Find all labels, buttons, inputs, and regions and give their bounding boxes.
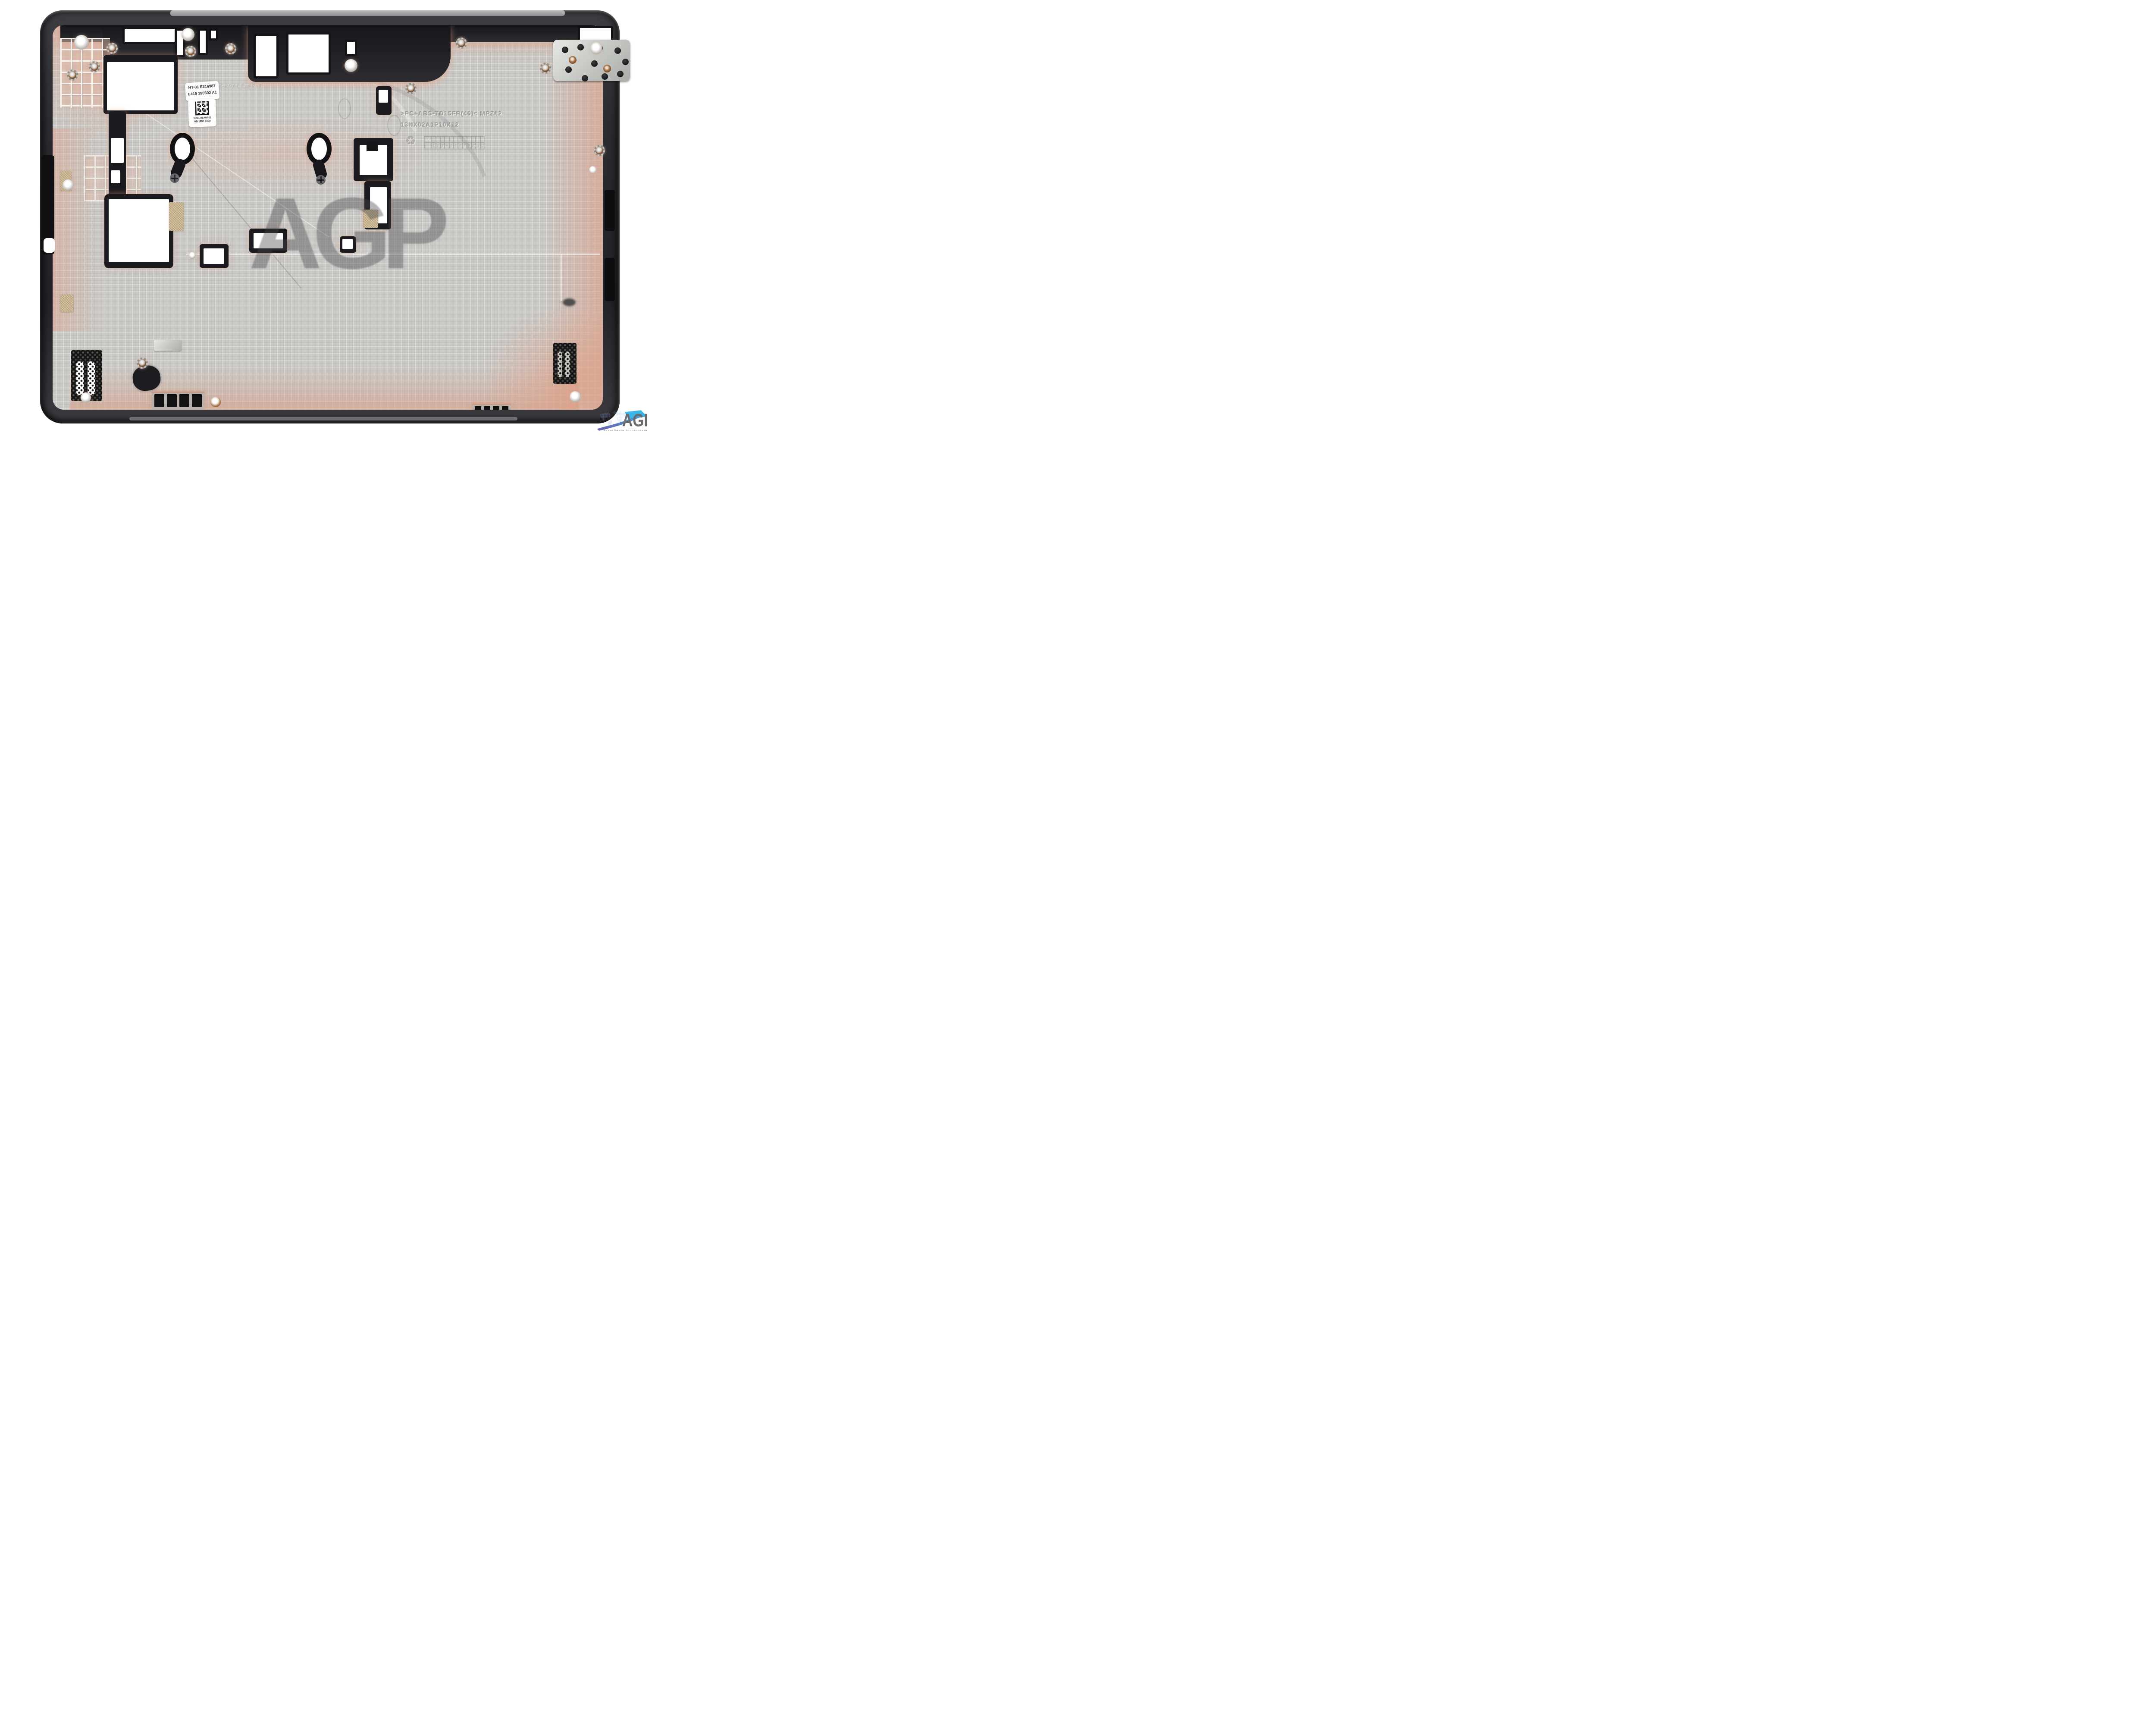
rev-table-cell (424, 142, 431, 149)
screw-boss-gear (107, 43, 118, 54)
frame-window (204, 248, 224, 264)
rev-table-cell: 10 (471, 142, 476, 149)
wall-port-highlight (44, 238, 55, 253)
molded-text-mold-number: 13NX02A1P10X12 (401, 122, 459, 128)
screw-boss-core (542, 64, 549, 72)
bracket-rubber-dot (582, 75, 588, 82)
vent-cell (154, 394, 164, 407)
frame-notch (367, 141, 378, 151)
frame-port-right-mid (376, 86, 392, 115)
top-rim-highlight (170, 10, 565, 16)
keyhole-opening-left (167, 133, 198, 185)
bracket-screw-hole (569, 56, 577, 64)
screw-boss-core (69, 71, 76, 79)
vent-cell (475, 406, 481, 410)
screw-boss-ring (210, 397, 221, 407)
sticker-part-label: HT-01 E316987 E419 190502 A1 (185, 81, 220, 101)
screw-boss-ring (345, 59, 357, 72)
frame-connector-upper (354, 138, 393, 181)
frame-window (109, 199, 169, 262)
rev-table-cell (458, 136, 462, 142)
rev-table-cell: 4 (445, 142, 449, 149)
rev-table-cell: 12 (480, 142, 485, 149)
molded-circle-2 (387, 115, 401, 136)
screw-boss-core (187, 47, 194, 55)
grille-slot (565, 351, 570, 377)
recycling-icon: ♻ (405, 134, 417, 148)
bracket-rubber-dot (617, 71, 624, 77)
rev-table-cell (463, 136, 467, 142)
logo-monogram: AGI (622, 410, 647, 430)
screw-boss-core (458, 39, 465, 47)
photo-canvas: HT-01 E316987 E419 190502 A1 13N1-86A0A0… (0, 0, 647, 431)
rev-table-cell: 2 (436, 142, 440, 149)
grille-slot (558, 351, 562, 377)
rev-table-cell: 6 (454, 142, 458, 149)
sticker-barcode-label: 13N1-86A0A01 0B 1955 3328 (188, 99, 216, 127)
screw-boss-gear (594, 145, 605, 156)
screw-boss-gear (67, 69, 78, 81)
frame-window (111, 138, 124, 163)
rev-table-cell: 1 (431, 142, 436, 149)
rev-table: REV123456789101112 (424, 136, 485, 149)
frame-window (379, 90, 388, 103)
screw-boss-core (407, 85, 415, 92)
rev-table-cell (436, 136, 440, 142)
rev-table-cell (454, 136, 458, 142)
rev-table-cell: 5 (449, 142, 454, 149)
rev-table-cell (440, 136, 445, 142)
hinge-through-hole (590, 42, 602, 54)
frame-opening-top-left (103, 55, 178, 114)
cutout-top-left (122, 27, 179, 44)
rev-table-cell: 8 (463, 142, 467, 149)
frame-opening-left-large (104, 194, 173, 268)
screw-boss-ring (74, 35, 89, 50)
screw-boss-ring (182, 28, 194, 41)
tape-left-lower (60, 295, 73, 312)
bracket-rubber-dot (562, 47, 568, 53)
rev-table-cell (445, 136, 449, 142)
bottom-rim-highlight (129, 417, 517, 420)
bracket-rubber-dot (565, 66, 572, 73)
rev-table-cell (480, 136, 485, 142)
rev-table-cell (476, 136, 480, 142)
rev-table-cell: 3 (440, 142, 445, 149)
bracket-rubber-dot (591, 60, 598, 67)
bracket-screw-hole (603, 65, 611, 72)
rev-table-cell: 9 (467, 142, 471, 149)
vent-bottom-left (152, 392, 204, 410)
frame-window (111, 170, 120, 183)
cutout-center-opening-1 (254, 34, 279, 78)
grille-slot (88, 361, 95, 395)
rev-table-cell (467, 136, 471, 142)
smudge-mark (563, 298, 576, 306)
watermark-text: AGP (249, 182, 440, 284)
screw-boss-ring (570, 391, 581, 402)
molded-text-faint: C204EE #2-1 (221, 84, 263, 89)
tape-frame-right (169, 202, 184, 231)
frame-small-1 (200, 244, 229, 268)
rev-table-header-cell: REV (424, 136, 431, 142)
screw-boss-core (108, 44, 116, 52)
vent-cell (192, 394, 202, 407)
screw-boss-core (138, 359, 146, 367)
screw-boss-ring (81, 392, 91, 403)
screw-boss-core (595, 147, 603, 154)
screw-boss-ring (63, 179, 74, 191)
cutout-top-c (209, 28, 218, 41)
screw-boss-gear (456, 38, 467, 49)
bracket-rubber-dot (614, 47, 621, 54)
tray-ridge-vertical (561, 254, 562, 301)
bracket-rubber-dot (622, 59, 629, 65)
screw-boss-ring (589, 166, 597, 174)
cutout-top-b (198, 28, 208, 55)
frame-column-left (109, 111, 126, 196)
vent-cell (167, 394, 177, 407)
screw-head (170, 173, 179, 183)
screw-boss-gear (405, 83, 417, 94)
rev-table-cell (449, 136, 454, 142)
right-wall-port-1 (605, 190, 615, 231)
vent-cell (484, 406, 490, 410)
metal-clip (154, 340, 182, 351)
barcode-label-line2: 0B 1955 3328 (189, 119, 216, 124)
screw-boss-ring (189, 252, 196, 259)
rev-table-cell: 7 (458, 142, 462, 149)
rev-table-cell (431, 136, 436, 142)
datamatrix-barcode (195, 101, 209, 115)
grille-slot (76, 361, 84, 395)
frame-window (107, 62, 174, 110)
molded-circle-1 (338, 98, 351, 119)
case-interior-panel: HT-01 E316987 E419 190502 A1 13N1-86A0A0… (53, 25, 603, 410)
vent-bottom-right (472, 404, 511, 410)
molded-text-material: >PC+ABS-TD15FR(40)< MPZ#2 (401, 110, 502, 117)
agi-logo: AGI AssetGenie Incorporated (597, 410, 647, 431)
right-wall-port-2 (605, 258, 615, 301)
screw-boss-gear (89, 61, 100, 72)
screw-boss-gear (225, 43, 236, 54)
screw-boss-gear (185, 46, 196, 57)
screw-boss-gear (137, 358, 148, 369)
vent-cell (493, 406, 499, 410)
screw-boss-core (227, 45, 235, 53)
bracket-rubber-dot (577, 44, 584, 50)
bracket-rubber-dot (602, 73, 608, 80)
logo-tagline: AssetGenie Incorporated (603, 429, 647, 431)
cutout-center-opening-2 (286, 32, 331, 75)
speaker-grille-right (553, 343, 577, 384)
vent-cell (179, 394, 189, 407)
screw-boss-gear (540, 63, 551, 74)
cutout-top-d (345, 40, 357, 56)
vent-cell (502, 406, 508, 410)
screw-boss-core (91, 63, 98, 71)
rev-table-cell: 11 (476, 142, 480, 149)
rev-table-cell (471, 136, 476, 142)
